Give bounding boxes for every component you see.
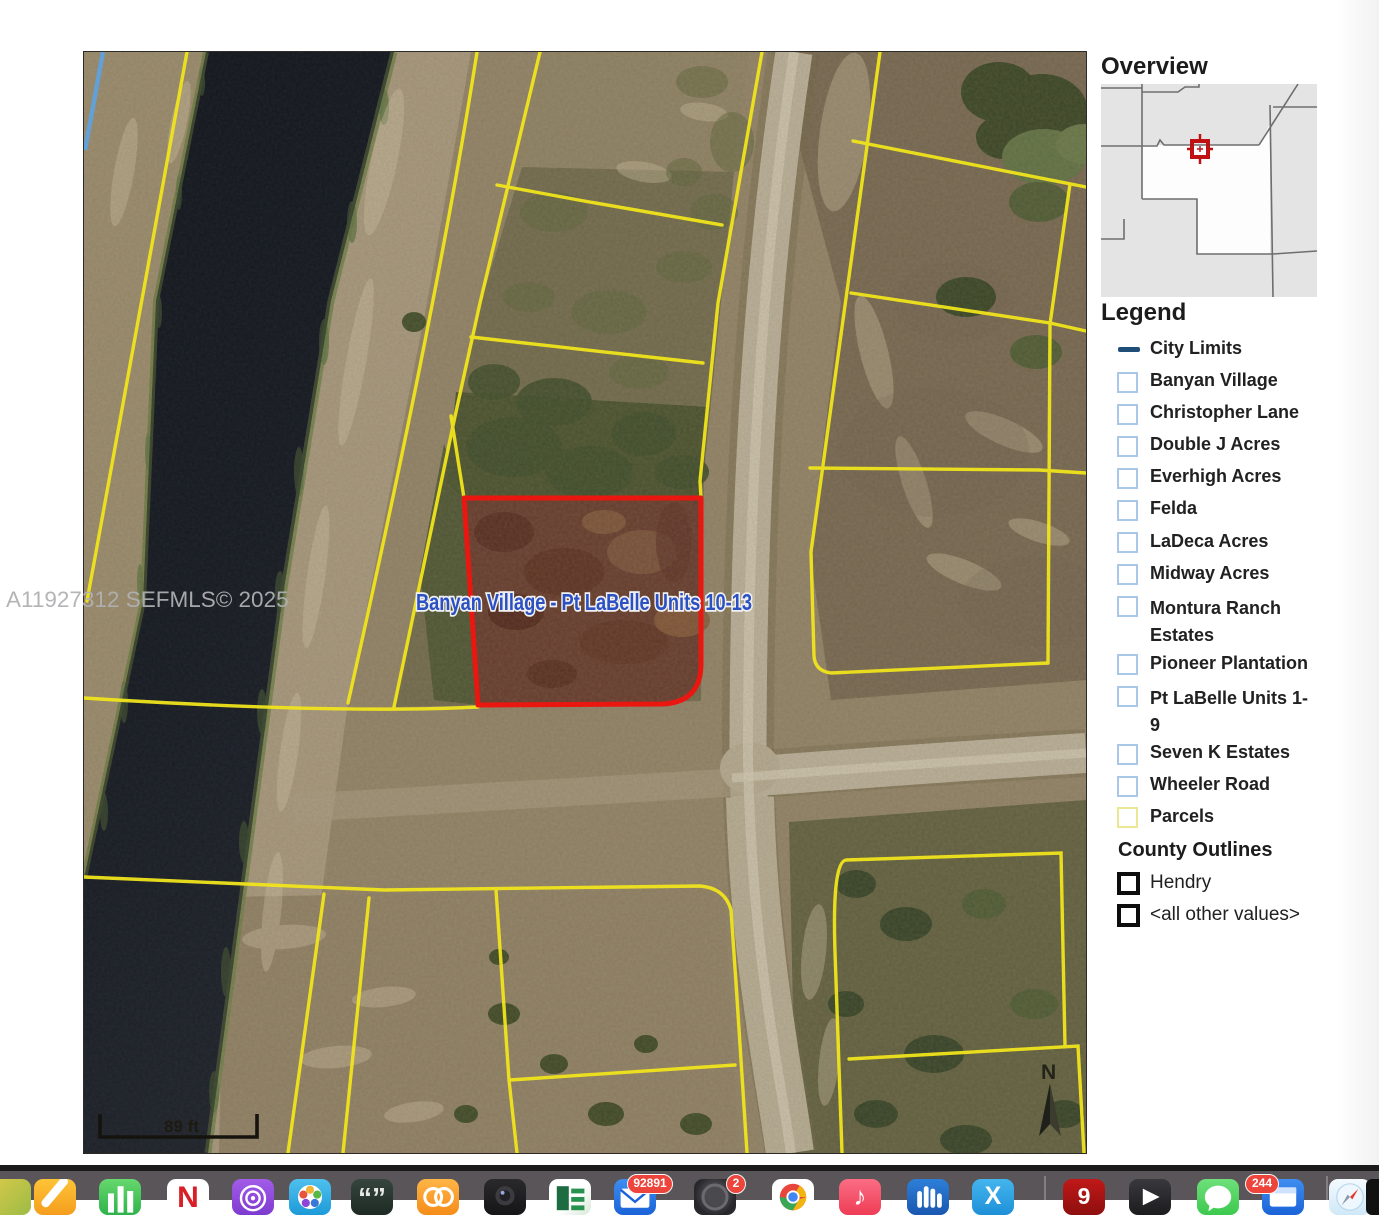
svg-text:N: N <box>1041 1061 1056 1084</box>
svg-text:Banyan Village - Pt LaBelle Un: Banyan Village - Pt LaBelle Units 10-13 <box>416 589 752 615</box>
svg-text:89 ft: 89 ft <box>164 1117 199 1136</box>
